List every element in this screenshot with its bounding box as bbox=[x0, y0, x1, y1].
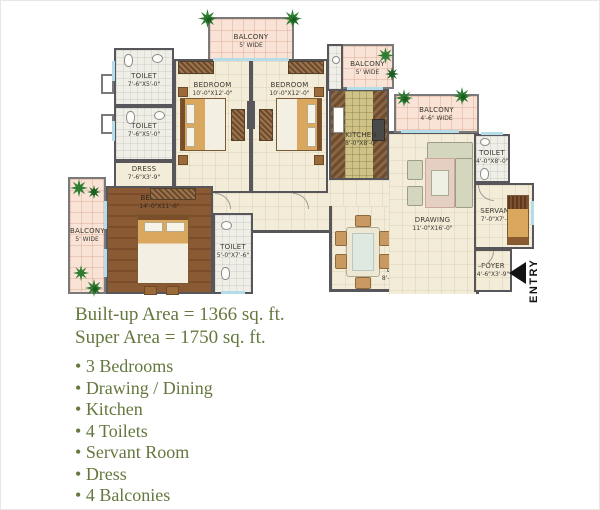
feature-item: 3 Bedrooms bbox=[75, 356, 355, 378]
window bbox=[104, 201, 107, 229]
wc-icon bbox=[480, 168, 489, 180]
sofa bbox=[455, 158, 473, 208]
window bbox=[112, 61, 115, 81]
kitchen-counter bbox=[331, 91, 345, 178]
room-bedroom-1: BEDROOM 10'-0"X12'-0" bbox=[174, 59, 251, 193]
plant-icon bbox=[198, 9, 217, 28]
washbasin-icon bbox=[152, 54, 163, 63]
toilet-label: TOILET 4'-0"X8'-0" bbox=[476, 149, 508, 165]
wc-icon bbox=[124, 54, 133, 67]
feature-item: Servant Room bbox=[75, 442, 355, 464]
kitchen-label: KITCHEN 8'-0"X8'-0" bbox=[345, 131, 377, 147]
room-toilet-3: TOILET 4'-0"X8'-0" bbox=[474, 134, 510, 183]
room-toilet-1: TOILET 7'-6"X5'-0" bbox=[114, 48, 174, 106]
toilet-label: TOILET 7'-6"X5'-0" bbox=[116, 122, 172, 138]
plant-icon bbox=[283, 9, 302, 28]
room-bedroom-2: BEDROOM 10'-0"X12'-0" bbox=[251, 59, 328, 193]
toilet-label: TOILET 5'-0"X7'-6" bbox=[215, 243, 251, 259]
column bbox=[247, 101, 255, 129]
feature-item: Dress bbox=[75, 464, 355, 486]
plant-icon bbox=[453, 87, 471, 105]
armchair bbox=[407, 160, 423, 180]
balcony-top: BALCONY 5' WIDE bbox=[208, 17, 294, 61]
side-table bbox=[178, 87, 188, 97]
room-master-bedroom: BEDROOM 14'-0"X11'-6" bbox=[106, 186, 213, 294]
utility-nook bbox=[327, 44, 343, 91]
room-toilet-4: TOILET 5'-0"X7'-6" bbox=[213, 213, 253, 294]
wall-segment bbox=[251, 230, 332, 233]
room-kitchen: KITCHEN 8'-0"X8'-0" bbox=[329, 89, 389, 180]
dress-label: DRESS 7'-6"X3'-9" bbox=[116, 165, 172, 181]
room-drawing: DRAWING 11'-0"X16'-0" bbox=[389, 131, 479, 294]
drawing-label: DRAWING 11'-0"X16'-0" bbox=[389, 216, 476, 232]
wardrobe bbox=[288, 61, 324, 74]
wc-icon bbox=[221, 267, 230, 280]
balcony-label: BALCONY 4'-6" WIDE bbox=[396, 106, 477, 122]
window bbox=[104, 249, 107, 277]
wc-icon bbox=[126, 111, 135, 124]
window bbox=[347, 87, 383, 90]
window bbox=[531, 201, 534, 225]
balcony-label: BALCONY 5' WIDE bbox=[70, 227, 104, 243]
armchair bbox=[407, 186, 423, 206]
plant-icon bbox=[87, 185, 101, 199]
plant-icon bbox=[85, 279, 103, 297]
bed bbox=[180, 98, 226, 151]
wardrobe bbox=[178, 61, 214, 74]
feature-list: 3 Bedrooms Drawing / Dining Kitchen 4 To… bbox=[75, 356, 355, 507]
dining-chair bbox=[335, 254, 347, 269]
room-toilet-2: TOILET 7'-6"X5'-0" bbox=[114, 106, 174, 161]
washbasin-icon bbox=[480, 138, 490, 146]
entry-label: ENTRY bbox=[528, 251, 542, 303]
entry-arrow-icon bbox=[509, 262, 526, 284]
plant-icon bbox=[377, 47, 394, 64]
dining-chair bbox=[355, 277, 371, 289]
plant-icon bbox=[385, 67, 399, 81]
kitchen-sink-icon bbox=[333, 107, 344, 133]
details-block: Built-up Area = 1366 sq. ft. Super Area … bbox=[75, 303, 355, 507]
bed bbox=[137, 214, 189, 284]
feature-item: 4 Toilets bbox=[75, 421, 355, 443]
bed bbox=[276, 98, 322, 151]
washbasin-icon bbox=[221, 221, 232, 230]
window bbox=[213, 58, 289, 61]
dining-table-top bbox=[352, 233, 374, 271]
window bbox=[401, 130, 459, 133]
dresser bbox=[231, 109, 245, 141]
wardrobe bbox=[150, 188, 196, 200]
feature-item: Drawing / Dining bbox=[75, 378, 355, 400]
dining-chair bbox=[355, 215, 371, 227]
dresser bbox=[259, 109, 273, 141]
floor-plan-page: DINING 8'-6"X11'-6" DRAWING 11'-0"X16'-0… bbox=[0, 0, 600, 510]
window bbox=[221, 291, 245, 294]
super-area-text: Super Area = 1750 sq. ft. bbox=[75, 326, 355, 349]
servant-bed bbox=[507, 195, 529, 245]
balcony-label: BALCONY 5' WIDE bbox=[210, 33, 292, 49]
toilet-label: TOILET 7'-6"X5'-0" bbox=[116, 72, 172, 88]
feature-item: Kitchen bbox=[75, 399, 355, 421]
washbasin-icon bbox=[332, 56, 340, 64]
plant-icon bbox=[70, 179, 88, 197]
side-table bbox=[314, 87, 324, 97]
side-table bbox=[178, 155, 188, 165]
feature-item: 4 Balconies bbox=[75, 485, 355, 507]
builtup-area-text: Built-up Area = 1366 sq. ft. bbox=[75, 303, 355, 326]
washbasin-icon bbox=[154, 111, 165, 120]
foot-stool bbox=[144, 286, 157, 295]
foot-stool bbox=[166, 286, 179, 295]
dining-chair bbox=[335, 231, 347, 246]
side-table bbox=[314, 155, 324, 165]
window bbox=[481, 132, 503, 135]
center-table bbox=[431, 170, 449, 196]
window bbox=[112, 121, 115, 141]
plant-icon bbox=[395, 89, 413, 107]
